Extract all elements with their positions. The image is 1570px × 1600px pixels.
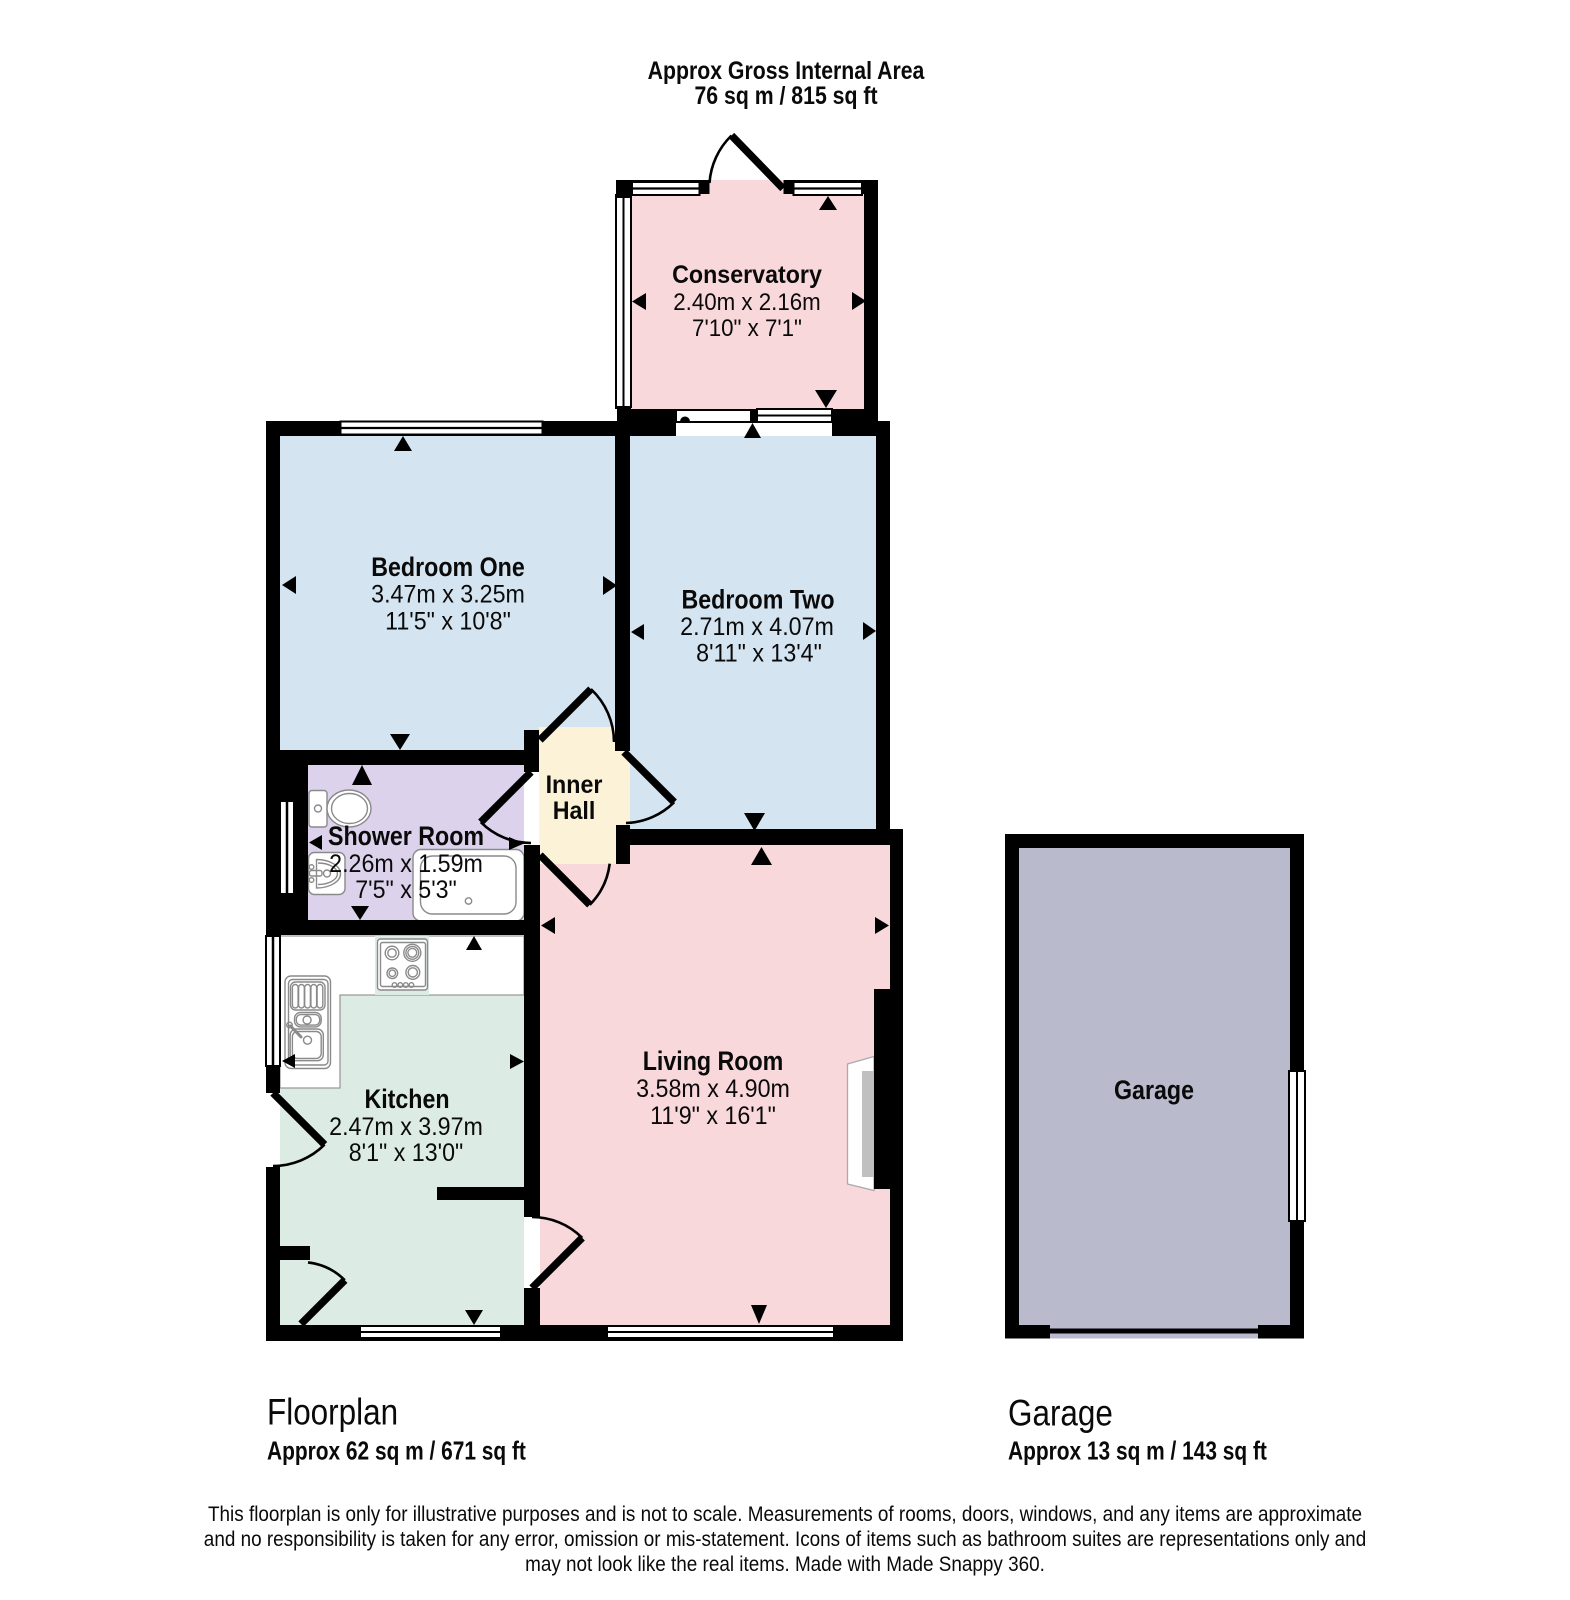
svg-text:7'10" x 7'1": 7'10" x 7'1": [692, 314, 802, 341]
svg-text:This floorplan is only for ill: This floorplan is only for illustrative …: [208, 1503, 1362, 1526]
svg-text:Shower Room: Shower Room: [328, 821, 484, 851]
svg-text:Living Room: Living Room: [643, 1046, 784, 1076]
svg-text:Floorplan: Floorplan: [267, 1392, 398, 1433]
svg-text:Bedroom Two: Bedroom Two: [681, 585, 834, 615]
svg-text:8'11" x 13'4": 8'11" x 13'4": [696, 640, 822, 668]
svg-text:2.71m x 4.07m: 2.71m x 4.07m: [680, 613, 834, 641]
svg-text:Kitchen: Kitchen: [364, 1084, 449, 1114]
svg-text:7'5" x 5'3": 7'5" x 5'3": [355, 876, 457, 904]
svg-text:Conservatory: Conservatory: [672, 261, 822, 289]
svg-text:11'5" x 10'8": 11'5" x 10'8": [385, 608, 511, 636]
svg-text:2.40m x 2.16m: 2.40m x 2.16m: [673, 288, 821, 315]
svg-text:2.26m x 1.59m: 2.26m x 1.59m: [329, 850, 483, 878]
svg-text:Bedroom One: Bedroom One: [371, 552, 524, 582]
svg-text:8'1" x 13'0": 8'1" x 13'0": [349, 1139, 464, 1167]
svg-text:11'9" x 16'1": 11'9" x 16'1": [650, 1102, 776, 1130]
svg-text:Hall: Hall: [553, 797, 596, 825]
svg-text:Garage: Garage: [1114, 1075, 1194, 1105]
svg-text:and no responsibility is taken: and no responsibility is taken for any e…: [204, 1528, 1366, 1551]
svg-text:3.47m x 3.25m: 3.47m x 3.25m: [371, 581, 525, 609]
svg-text:Approx 13 sq m / 143 sq ft: Approx 13 sq m / 143 sq ft: [1008, 1437, 1267, 1465]
svg-text:Inner: Inner: [546, 771, 603, 799]
svg-text:3.58m x 4.90m: 3.58m x 4.90m: [636, 1075, 790, 1103]
svg-text:76 sq m / 815 sq ft: 76 sq m / 815 sq ft: [694, 81, 877, 109]
svg-text:Garage: Garage: [1008, 1393, 1113, 1434]
svg-text:Approx Gross Internal Area: Approx Gross Internal Area: [648, 56, 926, 84]
svg-text:may not look like the real ite: may not look like the real items. Made w…: [525, 1553, 1045, 1576]
svg-text:2.47m x 3.97m: 2.47m x 3.97m: [329, 1113, 483, 1141]
svg-text:Approx 62 sq m / 671 sq ft: Approx 62 sq m / 671 sq ft: [267, 1437, 526, 1465]
